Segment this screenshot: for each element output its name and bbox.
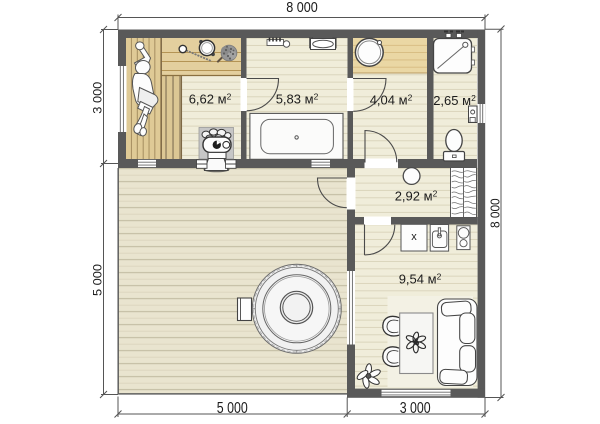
svg-text:6,62 м2: 6,62 м2 (189, 92, 232, 107)
svg-text:8 000: 8 000 (487, 198, 502, 228)
svg-text:x: x (411, 231, 417, 243)
svg-text:3 000: 3 000 (400, 400, 431, 417)
svg-text:3 000: 3 000 (90, 81, 104, 113)
svg-text:2,92 м2: 2,92 м2 (395, 189, 438, 204)
svg-text:9,54 м2: 9,54 м2 (399, 272, 442, 287)
svg-text:4,04 м2: 4,04 м2 (370, 93, 413, 108)
svg-text:2,65 м2: 2,65 м2 (433, 93, 476, 108)
svg-text:5 000: 5 000 (217, 400, 248, 417)
svg-text:5 000: 5 000 (90, 264, 104, 296)
svg-text:5,83 м2: 5,83 м2 (276, 92, 319, 107)
svg-text:8 000: 8 000 (286, 0, 318, 16)
